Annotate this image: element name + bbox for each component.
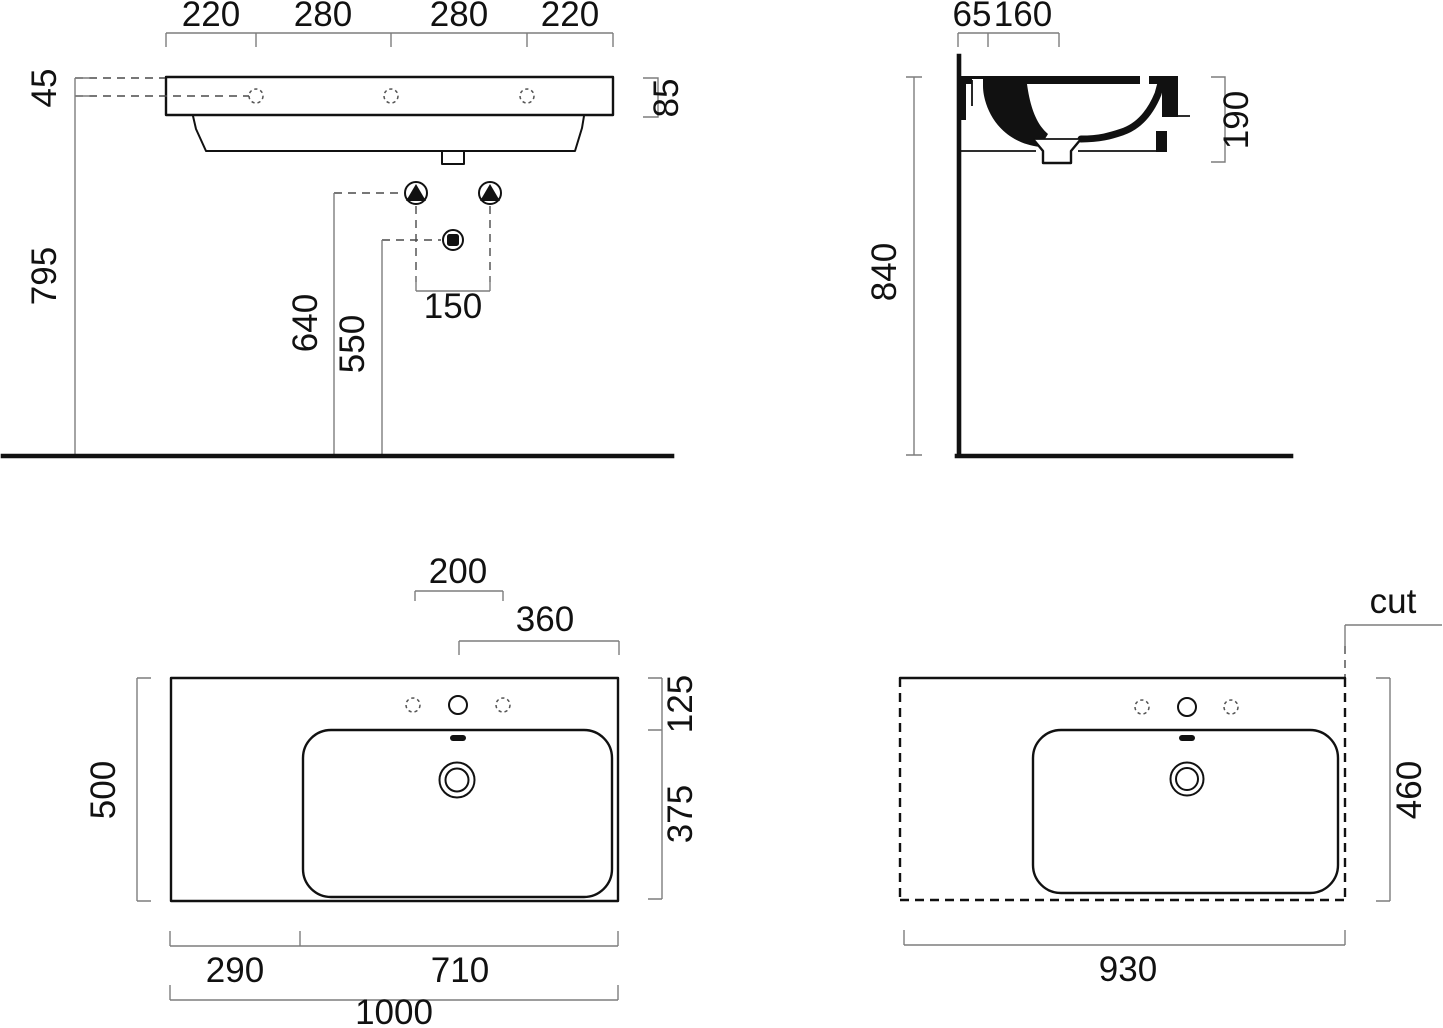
depth-460-line	[1376, 678, 1390, 901]
cut-plan-bowl-outline	[1033, 730, 1338, 893]
dim-label-150: 150	[424, 287, 482, 326]
section-waste-funnel	[1033, 139, 1081, 163]
section-back-tab	[961, 84, 966, 120]
dim-label-840: 840	[865, 243, 904, 301]
section-front-foot	[1156, 131, 1167, 152]
dim-label-460: 460	[1390, 761, 1429, 819]
plan-outline	[171, 678, 618, 901]
section-screw-slot-gap	[972, 79, 983, 85]
cut-overflow-slot	[1179, 735, 1195, 741]
technical-drawing-sheet: 220 280 280 220 45 795 85 15	[0, 0, 1443, 1028]
dim-label-45: 45	[25, 69, 64, 108]
tap-hole-hidden-left	[249, 89, 263, 103]
dim-label-125: 125	[661, 675, 700, 733]
dim-label-190: 190	[1217, 91, 1256, 149]
dim-label-1000: 1000	[355, 993, 433, 1028]
waste-outlet-marker	[447, 234, 459, 246]
tap-spacing-bracket	[415, 591, 503, 601]
cut-plan-dashed-edges	[900, 678, 1345, 900]
section-bowl-floor	[1081, 83, 1161, 139]
section-back-mass	[983, 84, 1048, 147]
height-840-line	[906, 77, 922, 455]
cut-label: cut	[1370, 582, 1417, 621]
dim-label-top-280-a: 280	[294, 0, 352, 34]
cut-plan-view: cut 460 930	[900, 582, 1442, 989]
dim-label-500: 500	[84, 761, 123, 819]
plan-overflow-slot	[450, 735, 466, 741]
dim-label-top-right-220: 220	[541, 0, 599, 34]
dim-label-375: 375	[661, 785, 700, 843]
tap-hole-hidden-right	[520, 89, 534, 103]
top-dimension-chain	[166, 33, 613, 47]
right-split-dimension-line	[648, 678, 662, 899]
dim-label-795: 795	[25, 247, 64, 305]
section-front-face	[1162, 76, 1178, 117]
cut-leader-line	[1345, 625, 1442, 646]
tap-to-edge-bracket	[459, 641, 619, 655]
side-section-view: 65 160 840 190	[865, 0, 1291, 456]
side-top-dimension-chain	[958, 33, 1059, 47]
depth-500-line	[137, 678, 151, 901]
dim-label-160: 160	[994, 0, 1052, 34]
tap-hole-hidden-center	[384, 89, 398, 103]
dim-label-290: 290	[206, 951, 264, 990]
cut-drain-inner	[1176, 768, 1198, 790]
dim-label-930: 930	[1099, 950, 1157, 989]
bottom-split-dimension-line	[170, 931, 618, 946]
dim-label-200: 200	[429, 552, 487, 591]
width-930-dimension-line	[904, 930, 1345, 945]
front-view: 220 280 280 220 45 795 85 15	[3, 0, 686, 456]
plan-tap-hole-left	[406, 698, 420, 712]
plan-bowl-outline	[303, 730, 612, 897]
dim-label-85: 85	[647, 79, 686, 118]
dim-label-top-left-220: 220	[182, 0, 240, 34]
dim-label-710: 710	[431, 951, 489, 990]
left-dimension-line	[75, 78, 90, 455]
plan-tap-hole-center	[449, 696, 467, 714]
dim-label-360: 360	[516, 600, 574, 639]
bolt-construction-lines	[334, 193, 490, 282]
dim-label-640: 640	[286, 294, 325, 352]
waste-stub-front	[442, 151, 464, 164]
dim-label-550: 550	[333, 315, 372, 373]
basin-cross-section	[961, 76, 1190, 163]
cut-tap-hole-left	[1135, 700, 1149, 714]
plan-tap-hole-right	[496, 698, 510, 712]
projection-lines-left	[75, 78, 249, 96]
basin-skirt-front	[193, 116, 584, 151]
section-front-rim	[1149, 76, 1162, 84]
plan-view: 200 360 500 125 375 290 710 1000	[84, 552, 700, 1028]
plan-drain-inner	[446, 769, 469, 792]
section-rim-top	[961, 76, 1140, 84]
dim-label-top-280-b: 280	[430, 0, 488, 34]
dim-label-65: 65	[953, 0, 992, 34]
cut-tap-hole-center	[1178, 698, 1196, 716]
cut-tap-hole-right	[1224, 700, 1238, 714]
washbasin-dimension-drawing: 220 280 280 220 45 795 85 15	[0, 0, 1443, 1028]
